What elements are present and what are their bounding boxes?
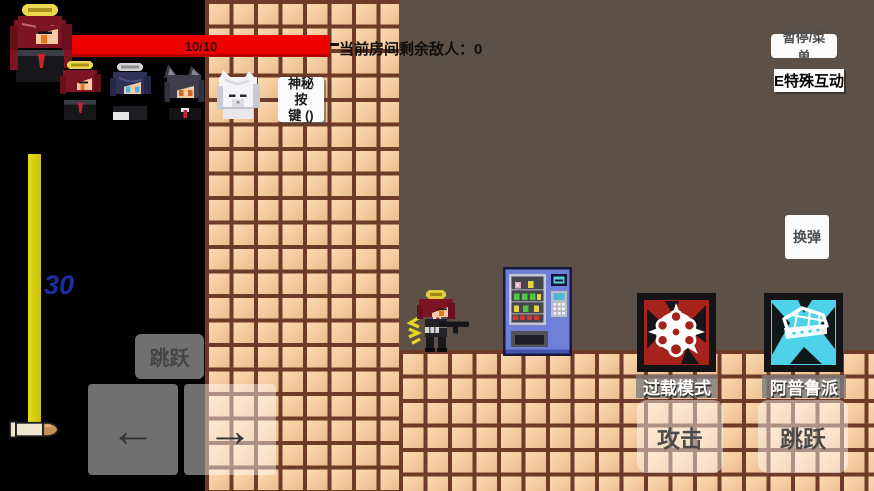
health-bar: 10/10 xyxy=(72,35,330,57)
game-screen: 10/10 当前房间剩余敌人：0 暂停/菜单 E特殊互动 神秘按 键 () 换弹… xyxy=(0,0,874,491)
navy-hair-gray-halo-portrait xyxy=(107,62,153,120)
reload-button[interactable]: 换弹 xyxy=(785,215,829,259)
mystery-key-button[interactable]: 神秘按 键 () xyxy=(278,77,324,122)
red-hair-halo-portrait-small xyxy=(57,60,103,120)
move-left-button[interactable]: ← xyxy=(88,384,178,475)
enemy-counter-label: 当前房间剩余敌人：0 xyxy=(339,38,482,59)
skill-label-apple-pie: 阿普鲁派 xyxy=(762,375,846,398)
apple-pie-icon[interactable] xyxy=(764,293,843,372)
white-fluffy-portrait xyxy=(215,70,261,120)
skill-label-overload: 过载模式 xyxy=(636,375,718,398)
bullet-icon xyxy=(9,420,59,439)
attack-button[interactable]: 攻击 xyxy=(637,400,723,473)
mystery-key-line2: 键 () xyxy=(288,108,313,124)
overload-cluster-icon[interactable] xyxy=(637,293,716,372)
health-value: 10/10 xyxy=(185,39,218,54)
pause-menu-button[interactable]: 暂停/菜单 xyxy=(771,34,837,58)
jump-button-left[interactable]: 跳跃 xyxy=(135,334,204,379)
move-right-button[interactable]: → xyxy=(184,384,276,475)
jump-button-right[interactable]: 跳跃 xyxy=(758,400,848,473)
mystery-key-line1: 神秘按 xyxy=(284,76,318,108)
ammo-bar xyxy=(28,154,41,422)
special-interact-button[interactable]: E特殊互动 xyxy=(774,69,844,92)
ammo-count: 30 xyxy=(44,270,74,301)
wolf-ears-portrait xyxy=(161,64,208,120)
health-bar-connector xyxy=(330,43,339,46)
player-character xyxy=(413,287,469,353)
vending-machine xyxy=(503,267,572,356)
